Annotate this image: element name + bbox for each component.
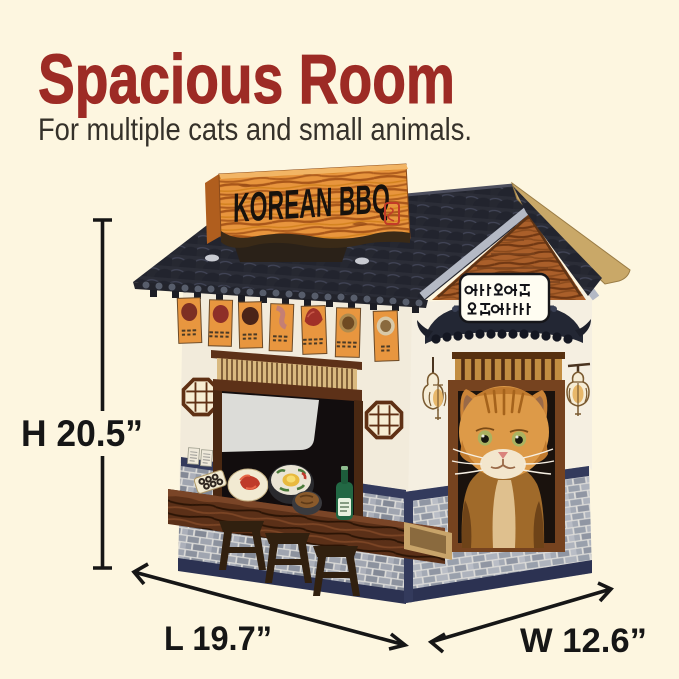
svg-text:KOREAN BBQ: KOREAN BBQ [233,175,390,231]
svg-text:L 19.7”: L 19.7” [164,620,272,658]
svg-text:H 20.5”: H 20.5” [21,413,143,454]
svg-text:Spacious Room: Spacious Room [38,40,455,118]
svg-text:W 12.6”: W 12.6” [520,622,647,660]
svg-text:For multiple cats and small an: For multiple cats and small animals. [38,111,472,147]
